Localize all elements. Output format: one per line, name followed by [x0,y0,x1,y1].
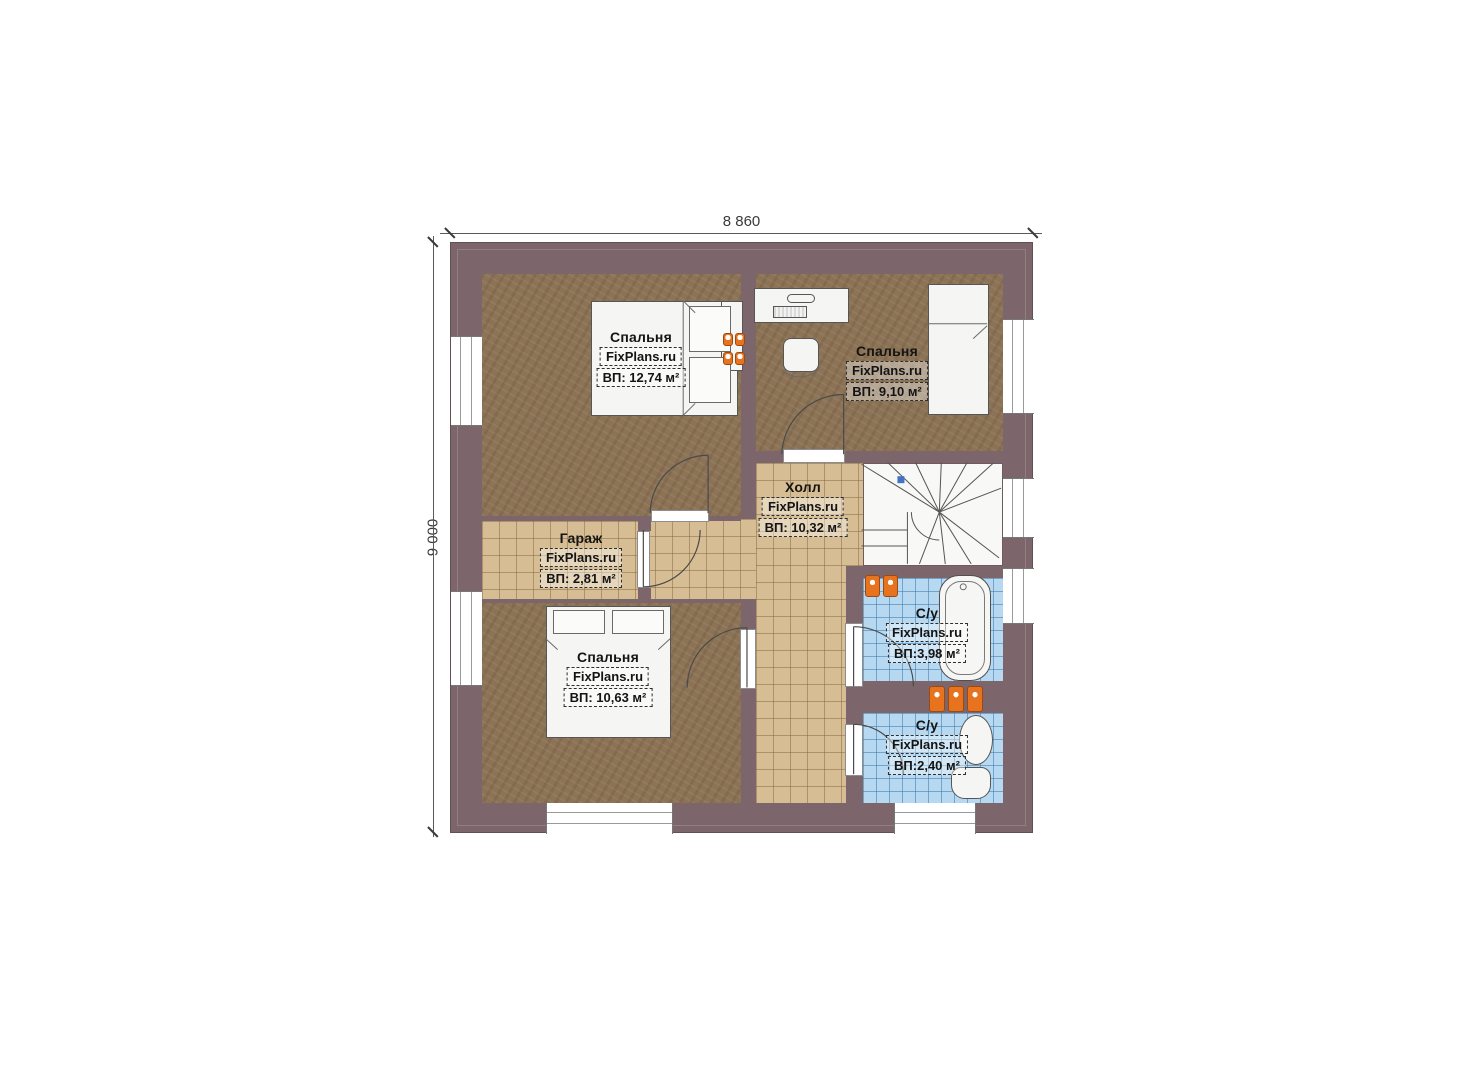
radiator-icon [967,686,983,712]
window [546,803,673,834]
pillow [612,610,664,634]
room-name: Спальня [846,343,928,359]
door-opening [845,724,863,776]
radiator-icon [723,352,733,365]
door-opening [637,531,650,588]
radiator-icon [883,575,898,597]
room-label-bedroom-top-left: Спальня FixPlans.ru ВП: 12,74 м² [597,329,686,387]
window [1003,319,1034,414]
interior-wall [482,599,741,603]
left-dimension-line [433,236,434,837]
staircase-area [863,463,1003,566]
single-bed [928,284,989,415]
window [894,803,976,834]
room-area: ВП:3,98 м² [888,644,966,663]
room-area: ВП: 12,74 м² [597,368,686,387]
room-label-bathroom-1: С/у FixPlans.ru ВП:3,98 м² [886,605,968,663]
room-label-hall: Холл FixPlans.ru ВП: 10,32 м² [759,479,848,537]
laptop [787,294,815,303]
window [451,336,482,426]
window [451,591,482,686]
brand-watermark: FixPlans.ru [540,548,622,567]
room-label-bedroom-top-right: Спальня FixPlans.ru ВП: 9,10 м² [846,343,928,401]
radiator-icon [929,686,945,712]
room-name: Гараж [540,530,622,546]
hall-corridor-floor [638,519,756,599]
door-opening [845,623,863,687]
radiator-icon [865,575,880,597]
brand-watermark: FixPlans.ru [846,361,928,380]
room-name: Спальня [564,649,653,665]
brand-watermark: FixPlans.ru [567,667,649,686]
floor-plan-page: 8 860 9 000 [0,0,1474,1080]
building-outline: Спальня FixPlans.ru ВП: 12,74 м² Спальня… [450,242,1033,833]
room-area: ВП: 9,10 м² [846,382,928,401]
top-dimension-label: 8 860 [450,213,1033,230]
room-area: ВП: 10,63 м² [564,688,653,707]
room-label-bedroom-bottom: Спальня FixPlans.ru ВП: 10,63 м² [564,649,653,707]
door-opening [783,449,845,463]
interior-wall [638,519,651,531]
room-name: Спальня [597,329,686,345]
room-name: С/у [886,717,968,733]
radiator-icon [948,686,964,712]
room-label-garage: Гараж FixPlans.ru ВП: 2,81 м² [540,530,622,588]
top-dimension-line [440,233,1042,234]
room-label-bathroom-2: С/у FixPlans.ru ВП:2,40 м² [886,717,968,775]
brand-watermark: FixPlans.ru [600,347,682,366]
window [1003,568,1034,624]
room-area: ВП:2,40 м² [888,756,966,775]
room-name: Холл [759,479,848,495]
door-opening [740,629,756,689]
radiator-icon [723,333,733,346]
door-opening [651,510,709,522]
interior-wall [741,451,1003,463]
interior-wall [638,588,651,599]
office-chair [783,338,819,372]
brand-watermark: FixPlans.ru [886,735,968,754]
window [1003,478,1034,538]
radiator-icon [735,352,745,365]
radiator-icon [735,333,745,346]
room-name: С/у [886,605,968,621]
brand-watermark: FixPlans.ru [762,497,844,516]
keyboard [773,306,807,318]
pillow [553,610,605,634]
room-area: ВП: 10,32 м² [759,518,848,537]
brand-watermark: FixPlans.ru [886,623,968,642]
room-area: ВП: 2,81 м² [540,569,622,588]
